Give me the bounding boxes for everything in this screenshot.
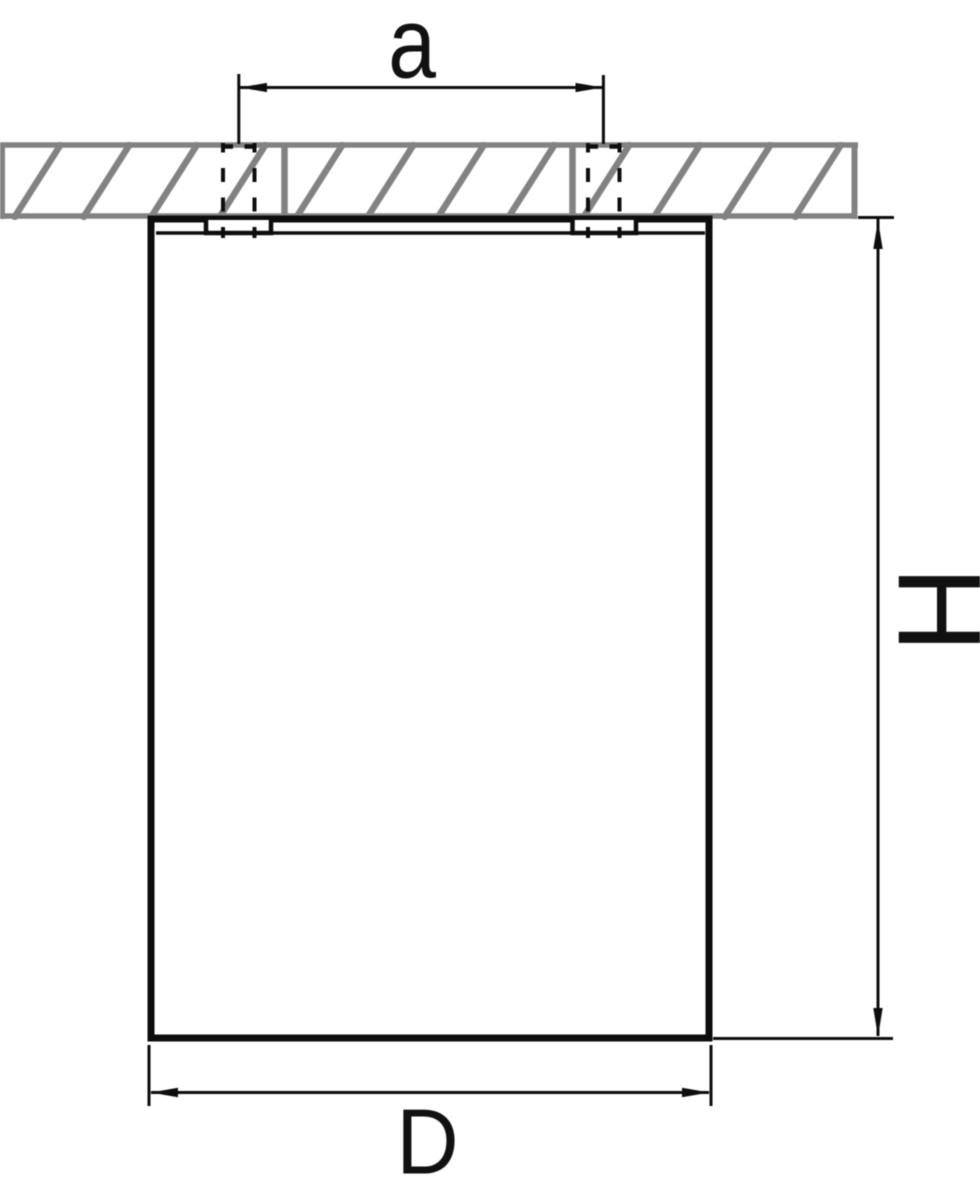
svg-text:H: H: [873, 566, 980, 652]
svg-text:D: D: [396, 1091, 458, 1195]
svg-text:a: a: [388, 0, 436, 99]
